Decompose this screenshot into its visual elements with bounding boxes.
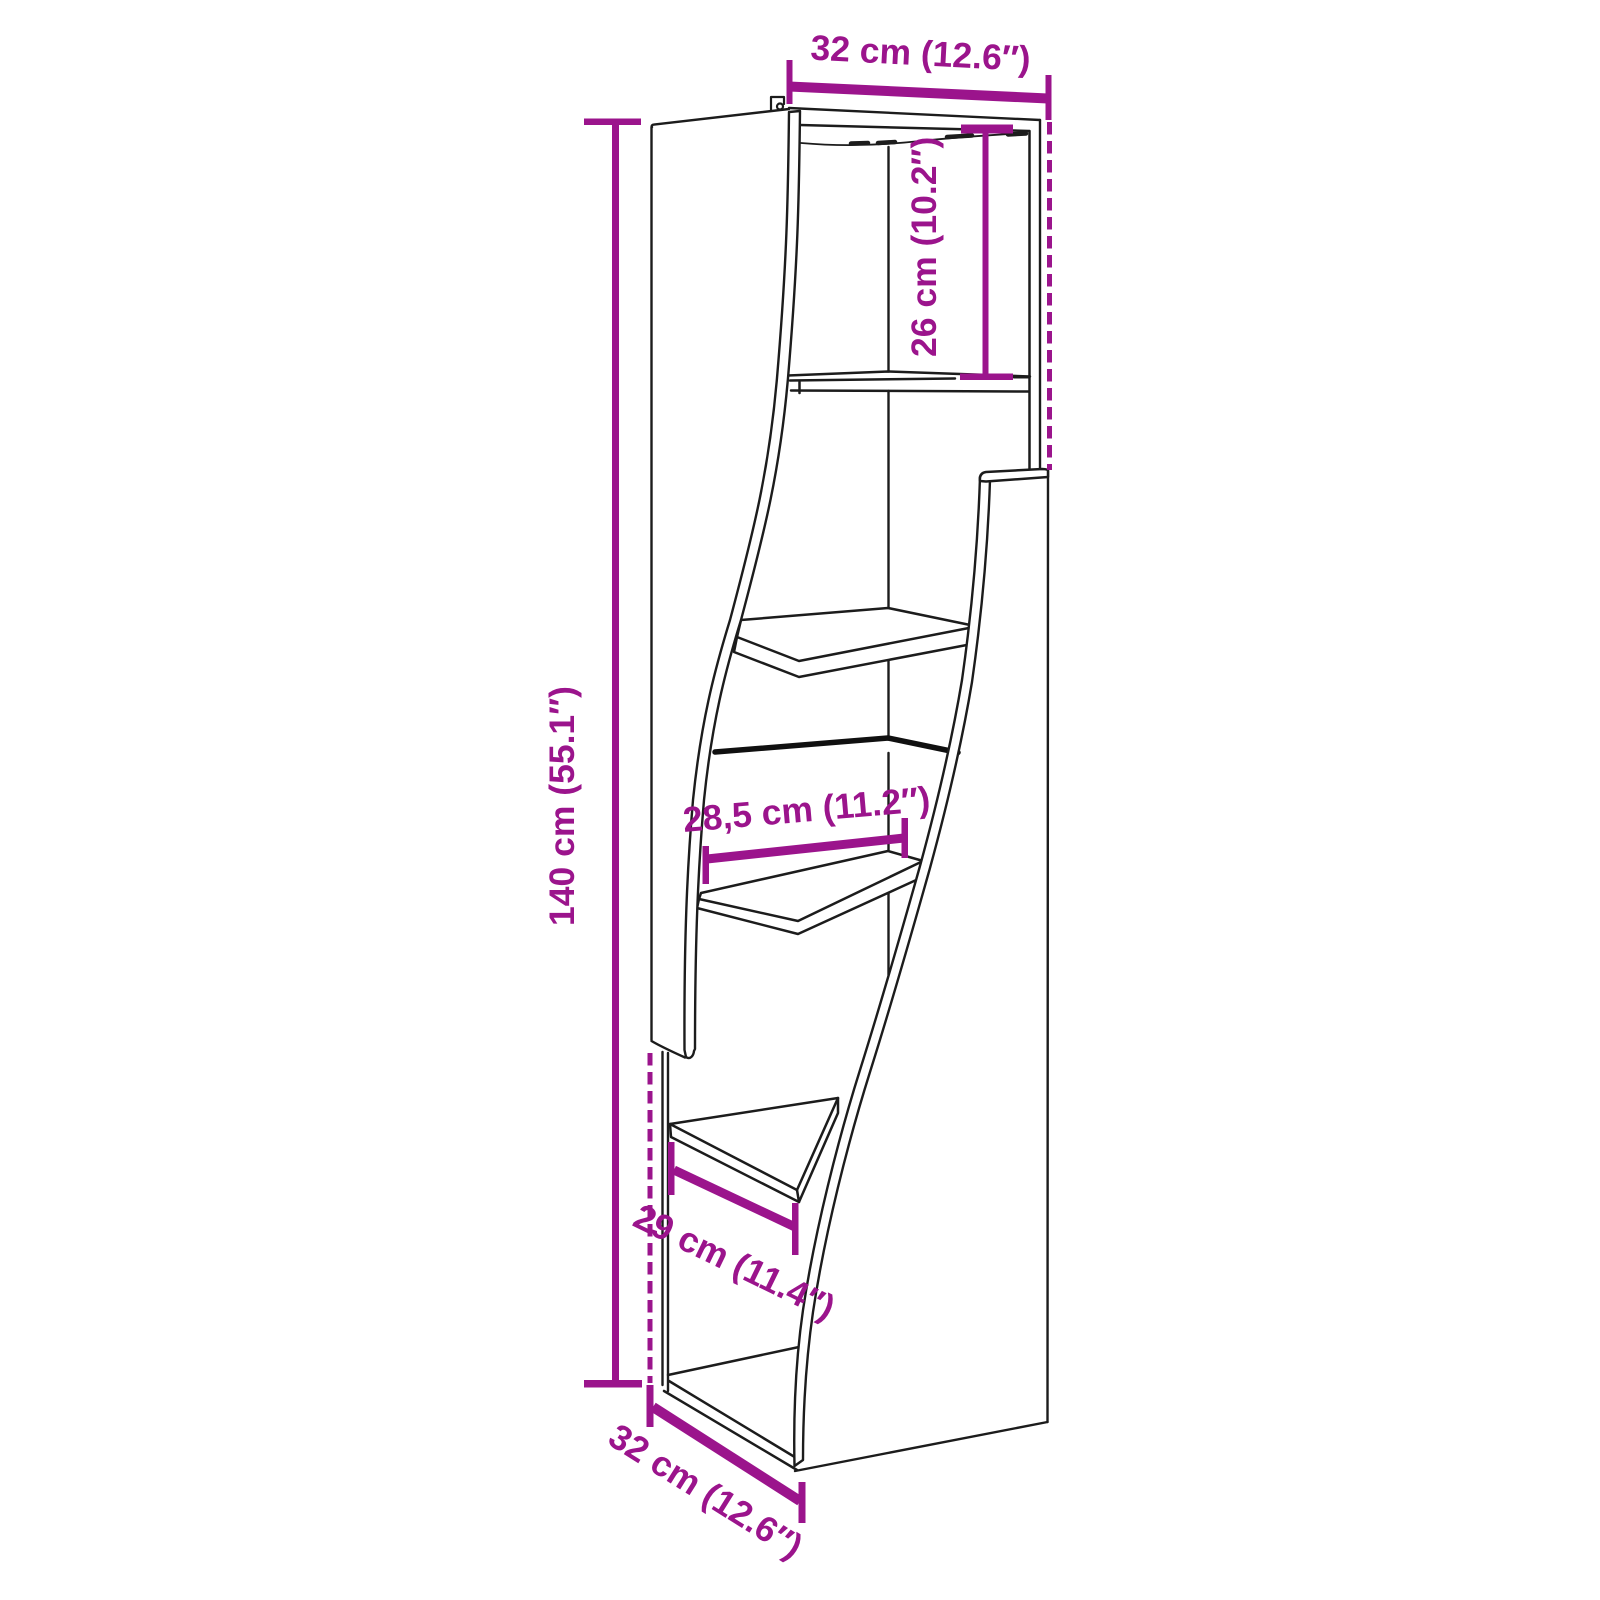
svg-text:26 cm (10.2″): 26 cm (10.2″) — [904, 137, 944, 357]
svg-text:140 cm (55.1″): 140 cm (55.1″) — [542, 686, 582, 926]
